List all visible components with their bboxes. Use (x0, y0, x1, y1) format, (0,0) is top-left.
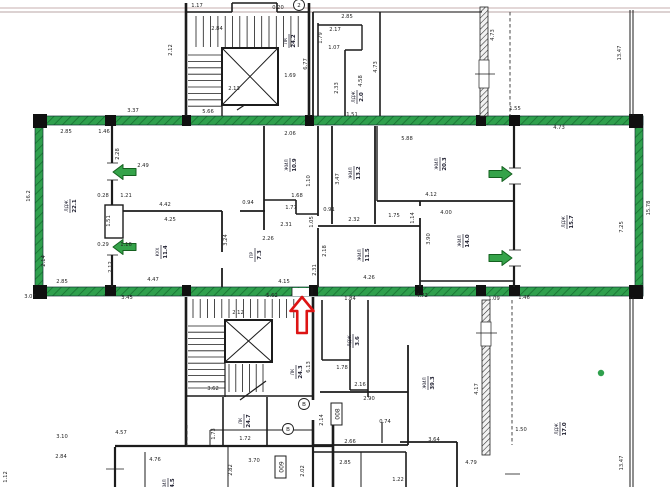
dimension-label: 4.12 (425, 192, 437, 198)
dimension-label: 1.68 (291, 193, 303, 199)
dimension-label: 2.85 (341, 14, 353, 20)
dimension-label: 2.14 (319, 414, 325, 426)
dimension-label: 4.72 (416, 293, 428, 299)
dimension-label: 2.31 (312, 264, 318, 276)
dimension-label: 0.94 (242, 200, 254, 206)
dimension-label: 4.73 (373, 61, 379, 73)
dimension-label: 2.12 (168, 44, 174, 56)
dimension-label: 4.47 (147, 277, 159, 283)
dimension-label: 2.02 (300, 465, 306, 477)
dimension-label: 6.77 (303, 58, 309, 70)
dimension-label: 1.46 (98, 129, 110, 135)
room-label-area: 11.5 (365, 248, 371, 262)
green-dot-mark (598, 370, 604, 376)
dimension-label: 1.17 (191, 3, 203, 9)
dimension-label: 1.05 (309, 216, 315, 228)
dimension-label: 5.88 (401, 136, 413, 142)
dimension-label: 1.69 (284, 73, 296, 79)
dimension-label: 2.85 (56, 279, 68, 285)
dimension-label: 0.28 (97, 193, 109, 199)
dimension-label: 7.25 (619, 221, 625, 233)
room-label-name: ЛДЖ (351, 91, 357, 103)
room-label-name: ПР (249, 252, 255, 258)
room-label-name: ЛДЖ (347, 335, 353, 347)
room-label-name: ЛДЖ (561, 216, 567, 228)
dimension-label: 13.47 (617, 46, 623, 61)
room-label-area: 39.3 (430, 376, 436, 390)
dimension-label: 3.10 (56, 434, 68, 440)
room-label-name: ЖИЛ (457, 235, 463, 246)
dimension-label: 2.14 (41, 255, 47, 267)
room-label-name: КУХ (155, 248, 161, 257)
apartment-number-box: 008 (331, 403, 342, 425)
dimension-label: 1.21 (120, 193, 132, 199)
room-label-area: 7.3 (257, 250, 263, 260)
dimension-label: 5.62 (266, 293, 278, 299)
dimension-label: 6.13 (306, 361, 312, 373)
room-label-name: ЖИЛ (348, 167, 354, 178)
room-label-name: ЛК (283, 37, 289, 44)
circled-mark-text: В (286, 427, 290, 433)
dimension-label: 1.22 (392, 477, 404, 483)
wall-corner-block (509, 115, 520, 126)
dimension-label: 1.73 (211, 428, 217, 440)
room-label-area: 20.3 (442, 157, 448, 171)
dimension-label: 2.18 (322, 245, 328, 257)
dimension-label: 15.78 (646, 201, 652, 216)
dimension-label: 2.84 (211, 26, 223, 32)
dimension-label: 2.90 (363, 396, 375, 402)
circled-mark-text: 2 (297, 3, 301, 9)
room-label-area: 3.6 (355, 336, 361, 346)
dimension-label: 4.58 (358, 75, 364, 87)
dimension-label: 4.25 (164, 217, 176, 223)
dimension-label: 1.16 (120, 242, 132, 248)
wall-corner-block (629, 114, 643, 128)
dimension-label: 0.29 (97, 242, 109, 248)
dimension-label: 3.62 (207, 386, 219, 392)
room-label-area: 22.1 (72, 199, 78, 213)
dimension-label: 4.57 (115, 430, 127, 436)
dimension-label: 1.07 (328, 45, 340, 51)
wall-corner-block (305, 115, 314, 126)
room-label-name: ЖИЛ (284, 159, 290, 170)
dimension-label: 1.55 (509, 106, 521, 112)
dimension-label: 4.42 (159, 202, 171, 208)
apartment-green-wall (35, 116, 43, 296)
dimension-label: 2.33 (334, 82, 340, 94)
dimension-label: 1.12 (3, 471, 9, 483)
dimension-label: 5.66 (202, 109, 214, 115)
dimension-label: 4.79 (465, 460, 477, 466)
dimension-label: 2.26 (262, 236, 274, 242)
dimension-label: 2.82 (228, 464, 234, 476)
room-label-area: 24.7 (246, 414, 252, 428)
wall-corner-block (476, 115, 486, 126)
wall-corner-block (476, 285, 486, 296)
dimension-label: 2.32 (348, 217, 360, 223)
dimension-label: 1.10 (306, 175, 312, 187)
dimension-label: 13.47 (619, 456, 625, 471)
room-label-name: ЖИЛ (422, 377, 428, 388)
room-label-area: 14.0 (465, 234, 471, 248)
window-opening (481, 322, 491, 346)
dimension-label: 2.85 (60, 129, 72, 135)
dimension-label: 2.12 (108, 261, 114, 273)
dimension-label: 1.84 (344, 296, 356, 302)
room-label-area: 24.2 (291, 34, 297, 48)
wall-corner-block (182, 285, 191, 296)
dimension-label: 1.14 (410, 212, 416, 224)
wall-corner-block (629, 285, 643, 299)
dimension-label: 3.07 (24, 294, 36, 300)
dimension-label: 1.77 (285, 205, 297, 211)
dimension-label: 1.51 (346, 112, 358, 118)
room-label-area: 15.7 (569, 215, 575, 229)
wall-corner-block (105, 285, 116, 296)
apartment-number-box: 009 (275, 456, 286, 478)
dimension-label: 2.84 (55, 454, 67, 460)
room-label-area: 2.0 (359, 92, 365, 102)
dimension-label: 3.90 (426, 233, 432, 245)
apartment-green-wall (35, 116, 643, 125)
dimension-label: 3.37 (127, 108, 139, 114)
wall-corner-block (182, 115, 191, 126)
floor-plan-drawing: 1.172.840.202.131.695.663.372.122.852.17… (0, 0, 670, 487)
room-label-area: 24.3 (298, 365, 304, 379)
dimension-label: 1.79 (318, 32, 324, 44)
dimension-label: 1.50 (515, 427, 527, 433)
dimension-label: 1.72 (239, 436, 251, 442)
dimension-label: 2.28 (115, 148, 121, 160)
dimension-label: 2.31 (280, 222, 292, 228)
dimension-label: 4.73 (490, 29, 496, 41)
dimension-label: 4.00 (440, 210, 452, 216)
dimension-label: 2.85 (339, 460, 351, 466)
dimension-label: 3.64 (428, 437, 440, 443)
dimension-label: 4.76 (149, 457, 161, 463)
room-label-area: 13.2 (356, 166, 362, 180)
wall-corner-block (33, 114, 47, 128)
dimension-label: 1.75 (388, 213, 400, 219)
wall-corner-block (105, 115, 116, 126)
dimension-label: 1.78 (336, 365, 348, 371)
dimension-label: 0.91 (323, 207, 335, 213)
dimension-label: 1.09 (488, 296, 500, 302)
room-label-name: ЛДЖ (554, 423, 560, 435)
room-label-name: ЛК (238, 417, 244, 424)
dimension-label: 3.45 (121, 295, 133, 301)
dimension-label: 4.17 (474, 383, 480, 395)
dimension-label: 0.74 (379, 419, 391, 425)
dimension-label: 16.2 (26, 190, 32, 202)
room-label-area: 24.5 (170, 478, 176, 487)
wall-corner-block (309, 285, 318, 296)
dimension-label: 2.66 (344, 439, 356, 445)
circled-mark-text: В (302, 402, 306, 408)
dimension-label: 3.70 (248, 458, 260, 464)
dimension-label: 3.47 (335, 173, 341, 185)
room-label-name: ЛК (290, 368, 296, 375)
floor-plan-page: 1.172.840.202.131.695.663.372.122.852.17… (0, 0, 670, 487)
room-label-name: ЖИЛ (434, 158, 440, 169)
room-label-area: 17.0 (562, 422, 568, 436)
apartment-number-text: 008 (335, 408, 342, 420)
room-label-name: ЖИЛ (162, 479, 168, 487)
room-label-area: 11.4 (163, 245, 169, 259)
dimension-label: 4.26 (363, 275, 375, 281)
dimension-label: 2.06 (284, 131, 296, 137)
dimension-label: 2.17 (329, 27, 341, 33)
dimension-label: 4.15 (278, 279, 290, 285)
dimension-label: 2.49 (137, 163, 149, 169)
dimension-label: 2.16 (354, 382, 366, 388)
dimension-label: 1.51 (106, 215, 112, 227)
dimension-label: 1.46 (518, 295, 530, 301)
room-label-area: 10.9 (292, 158, 298, 172)
room-label-name: ЛДЖ (64, 200, 70, 212)
dimension-label: 4.73 (553, 125, 565, 131)
room-label-name: ЖИЛ (357, 249, 363, 260)
dimension-label: 2.12 (232, 310, 244, 316)
apartment-number-text: 009 (279, 461, 286, 473)
dimension-label: 2.13 (228, 86, 240, 92)
apartment-green-wall (635, 116, 643, 296)
dimension-label: 3.24 (223, 234, 229, 246)
dimension-label: 0.20 (272, 5, 284, 11)
